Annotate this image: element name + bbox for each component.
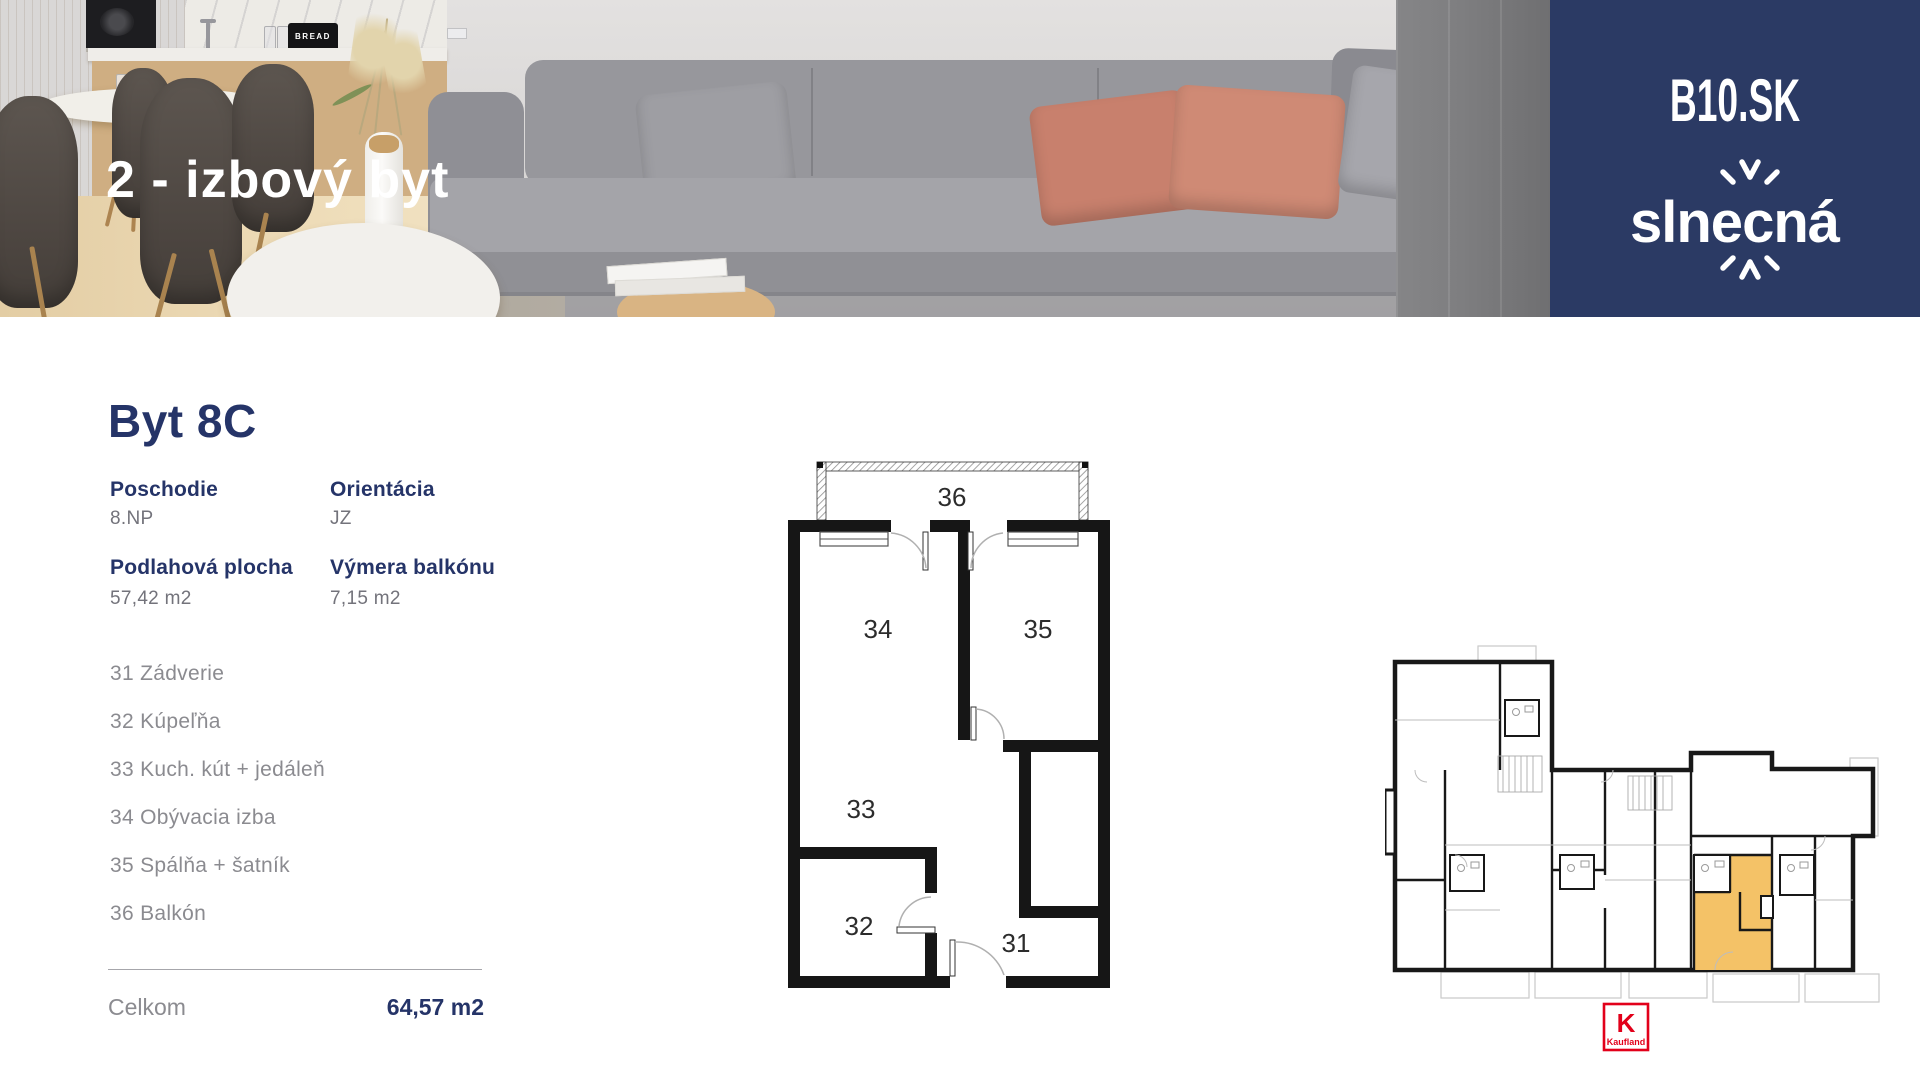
total-row: Celkom 64,57 m2	[108, 994, 484, 1021]
terracotta-pillow	[1168, 84, 1346, 220]
apartment-floorplan: 36 34 35 33 32 31	[785, 460, 1115, 990]
room-list-item: 35 Spálňa + šatník	[110, 854, 290, 878]
sun-rays-bottom	[1723, 258, 1777, 277]
room-label-31: 31	[1002, 928, 1031, 958]
logo-text-pre: slne	[1630, 190, 1742, 255]
detail-value-plocha: 57,42 m2	[110, 588, 192, 610]
total-divider	[108, 969, 482, 970]
slnecna-logo: slnecná	[1610, 150, 1860, 280]
room-list-item: 34 Obývacia izba	[110, 806, 276, 830]
building-left-bay	[1385, 790, 1395, 854]
room-label-34: 34	[864, 614, 893, 644]
detail-label-balkon: Výmera balkónu	[330, 556, 495, 580]
concrete-wall-seams	[1396, 0, 1550, 317]
room-label-32: 32	[845, 911, 874, 941]
sun-rays-top	[1723, 162, 1777, 182]
total-value: 64,57 m2	[387, 994, 484, 1021]
total-label: Celkom	[108, 994, 186, 1021]
kitchen-faucet	[206, 22, 210, 50]
kaufland-logo: K Kaufland	[1602, 1002, 1652, 1056]
room-label-33: 33	[847, 794, 876, 824]
built-in-oven	[86, 0, 156, 52]
detail-value-balkon: 7,15 m2	[330, 588, 401, 610]
detail-label-plocha: Podlahová plocha	[110, 556, 293, 580]
room-list-item: 31 Zádverie	[110, 662, 224, 686]
room-list-item: 36 Balkón	[110, 902, 206, 926]
brand-panel: B10.SK slnecná	[1550, 0, 1920, 317]
room-list-item: 32 Kúpeľňa	[110, 710, 221, 734]
detail-value-poschodie: 8.NP	[110, 508, 153, 530]
apartment-title: Byt 8C	[108, 394, 257, 448]
hero-title: 2 - izbový byt	[106, 150, 449, 210]
oven-window	[100, 8, 134, 36]
building-site-plan	[1385, 640, 1885, 1010]
hero-photo: BREAD	[0, 0, 1550, 317]
sofa-shadow	[432, 292, 1440, 317]
window	[820, 532, 1078, 546]
detail-label-poschodie: Poschodie	[110, 478, 218, 502]
light-switch	[447, 28, 467, 39]
site-title: B10.SK	[1620, 66, 1849, 135]
logo-text-c: c	[1742, 190, 1773, 255]
logo-text-post: ná	[1773, 190, 1840, 255]
sofa-front	[430, 252, 1442, 296]
brochure-page: BREAD	[0, 0, 1920, 1080]
kitchen-faucet-spout	[200, 19, 216, 23]
kaufland-name: Kaufland	[1607, 1037, 1646, 1047]
room-list-item: 33 Kuch. kút + jedáleň	[110, 758, 325, 782]
building-outline	[1395, 662, 1873, 970]
bread-box: BREAD	[288, 23, 338, 51]
sofa-seam	[811, 68, 813, 176]
room-label-35: 35	[1024, 614, 1053, 644]
apartment-walls	[788, 520, 1110, 988]
door-symbols	[891, 532, 1004, 976]
detail-label-orientacia: Orientácia	[330, 478, 435, 502]
svg-text:slnecná: slnecná	[1630, 190, 1841, 255]
detail-value-orientacia: JZ	[330, 508, 352, 530]
kaufland-k-letter: K	[1617, 1008, 1636, 1038]
room-label-36: 36	[938, 482, 967, 512]
